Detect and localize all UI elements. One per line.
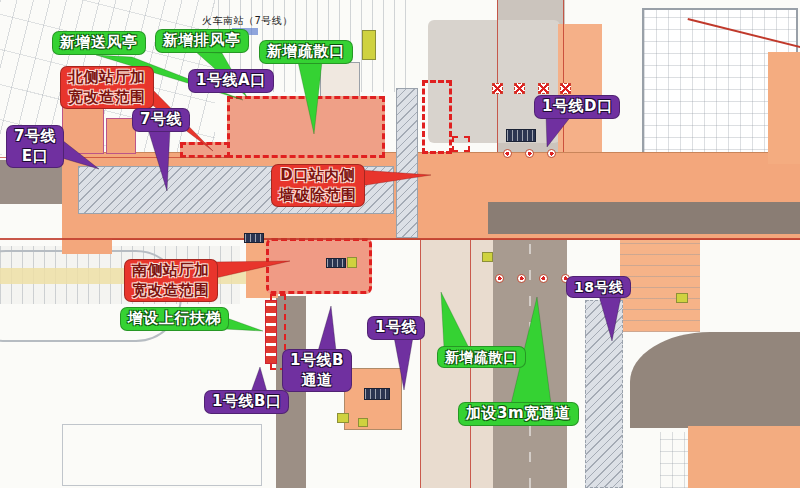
crosswalk-markers-lower — [495, 274, 570, 283]
vent-yellow-block — [362, 30, 376, 60]
cross-marker-2 — [514, 83, 525, 94]
callout-line7: 7号线 — [132, 108, 190, 132]
escalator-symbol-south-hall — [326, 258, 346, 268]
callout-text: 1号线B口 — [212, 392, 281, 412]
road-edge-line-horizontal — [0, 238, 800, 240]
crosswalk-markers-upper — [503, 149, 556, 158]
road-bottom-right-dark — [630, 332, 800, 428]
callout-new-exhaust-pavilion: 新增排风亭 — [155, 29, 249, 53]
hatch-strip-vertical — [396, 88, 418, 238]
callout-text: 南侧站厅加 — [132, 261, 210, 281]
callout-line1-exit-b: 1号线B口 — [204, 390, 289, 414]
escalator-symbol-exit-b — [364, 388, 390, 400]
cross-marker-3 — [538, 83, 549, 94]
callout-new-air-supply-pavilion: 新增送风亭 — [52, 31, 146, 55]
vent-structure-top — [320, 62, 360, 98]
d-exit-demolition-zone-small — [452, 136, 470, 152]
callout-text: D口站内侧 — [279, 166, 357, 186]
callout-new-evacuation-exit-bottom: 新增疏散口 — [437, 346, 526, 368]
callout-text: 1号线 — [375, 318, 417, 338]
callout-text: 7号线 — [14, 127, 56, 147]
up-escalator-strip — [265, 300, 277, 364]
exit-marker-yellow-1 — [482, 252, 493, 262]
road-edge-line-v1 — [497, 0, 498, 152]
exit-marker-yellow-4 — [358, 418, 368, 427]
callout-tail-line1-exit-b — [251, 367, 267, 392]
callout-text: 北侧站厅加 — [68, 68, 146, 88]
callout-text: 18号线 — [574, 278, 623, 296]
callout-text: 墙破除范围 — [279, 186, 357, 206]
north-hall-extension-zone — [180, 142, 230, 158]
exit-e-structure — [62, 106, 104, 154]
station-area-line18-upper — [620, 240, 700, 332]
callout-tail-line1-passage-b — [318, 306, 336, 351]
callout-new-3m-wide-passage: 加设3m宽通道 — [458, 402, 579, 426]
corner-bottom-right-orange — [688, 426, 800, 488]
callout-text: E口 — [14, 147, 56, 167]
callout-tail-new-up-escalator — [224, 317, 263, 331]
callout-new-evacuation-exit-top: 新增疏散口 — [259, 40, 353, 64]
callout-text: 增设上行扶梯 — [128, 309, 221, 329]
station-band-notch — [62, 238, 112, 254]
exit-marker-yellow-2 — [676, 293, 688, 303]
cross-marker-1 — [492, 83, 503, 94]
callout-south-hall-widening: 南侧站厅加 宽改造范围 — [124, 259, 218, 302]
parcel-bottom-left — [62, 424, 262, 486]
north-hall-widening-zone — [227, 96, 385, 158]
callout-line1-passage-b: 1号线B 通道 — [282, 349, 352, 392]
callout-text: 新增疏散口 — [445, 348, 518, 366]
station-title: 火车南站（7号线） — [202, 14, 293, 28]
road-right-horizontal-dark — [488, 202, 800, 234]
callout-text: 1号线B — [290, 351, 344, 371]
callout-text: 加设3m宽通道 — [466, 404, 571, 424]
callout-text: 宽改造范围 — [132, 281, 210, 301]
callout-north-hall-widening: 北侧站厅加 宽改造范围 — [60, 66, 154, 109]
callout-text: 1号线D口 — [542, 97, 612, 117]
cross-marker-4 — [560, 83, 571, 94]
road-edge-line-v2 — [563, 0, 564, 152]
callout-line7-exit-e: 7号线 E口 — [6, 125, 64, 168]
station-column-right-edge — [768, 52, 800, 164]
callout-line1: 1号线 — [367, 316, 425, 340]
callout-line1-exit-a: 1号线A口 — [188, 69, 274, 93]
escalator-symbol-band — [244, 233, 264, 243]
callout-text: 通道 — [290, 371, 344, 391]
callout-text: 1号线A口 — [196, 71, 266, 91]
callout-new-up-escalator: 增设上行扶梯 — [120, 307, 229, 331]
road-edge-line-v4 — [420, 240, 421, 488]
callout-text: 新增疏散口 — [267, 42, 345, 62]
callout-line18: 18号线 — [566, 276, 631, 298]
callout-text: 新增排风亭 — [163, 31, 241, 51]
callout-text: 7号线 — [140, 110, 182, 130]
callout-text: 宽改造范围 — [68, 88, 146, 108]
callout-text: 新增送风亭 — [60, 33, 138, 53]
callout-d-exit-inner-wall-demolition: D口站内侧 墙破除范围 — [271, 164, 365, 207]
callout-line1-exit-d: 1号线D口 — [534, 95, 620, 119]
exit-marker-yellow-3 — [337, 413, 349, 423]
line18-hatch-strip — [585, 300, 623, 488]
d-exit-demolition-zone — [422, 80, 452, 154]
escalator-symbol-d — [506, 129, 536, 142]
station-plan-drawing: 火车南站（7号线） 新增送风亭 新增排风亭 新增疏散口 1号线A口 北侧站厅加 … — [0, 0, 800, 488]
south-hall-yellow-block — [347, 257, 357, 268]
